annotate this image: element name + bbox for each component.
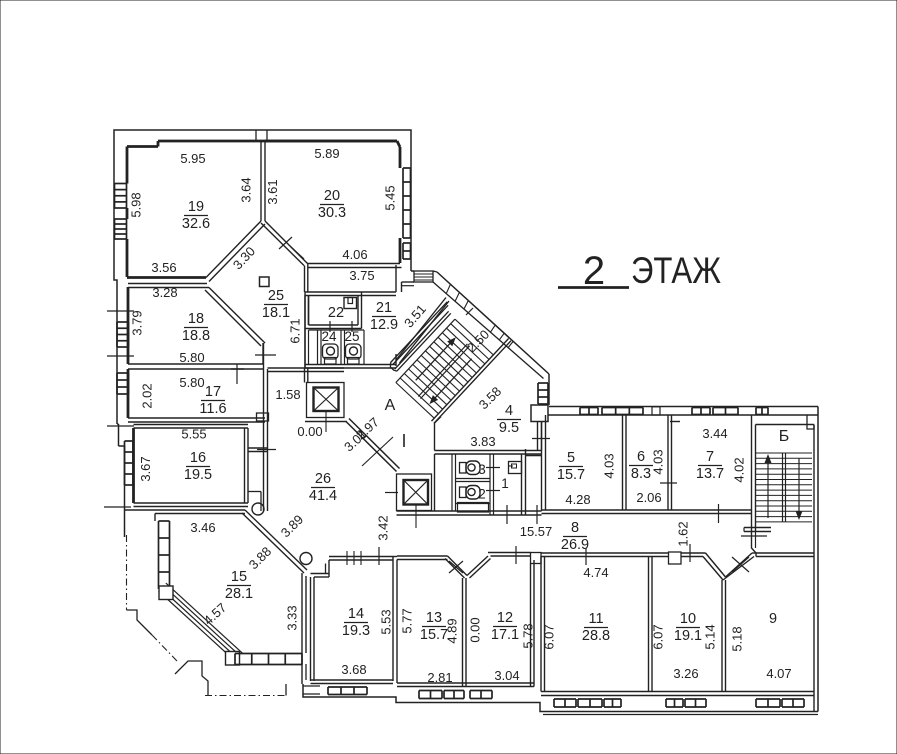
- svg-text:4: 4: [505, 403, 513, 419]
- svg-text:19.3: 19.3: [342, 623, 370, 639]
- svg-text:3.44: 3.44: [702, 426, 727, 441]
- svg-text:2.81: 2.81: [427, 670, 452, 685]
- svg-text:3.79: 3.79: [130, 310, 145, 335]
- svg-text:5.18: 5.18: [730, 626, 745, 651]
- svg-text:3.46: 3.46: [190, 520, 215, 535]
- svg-text:19: 19: [188, 199, 204, 215]
- svg-text:21: 21: [376, 300, 392, 316]
- svg-text:26: 26: [315, 471, 331, 487]
- svg-text:4.03: 4.03: [651, 449, 666, 474]
- svg-text:28.8: 28.8: [582, 628, 610, 644]
- svg-text:28.1: 28.1: [225, 586, 253, 602]
- svg-text:3.61: 3.61: [265, 179, 280, 204]
- svg-text:7: 7: [706, 449, 714, 465]
- svg-text:10: 10: [680, 611, 696, 627]
- svg-text:5.77: 5.77: [400, 608, 415, 633]
- svg-text:5: 5: [567, 450, 575, 466]
- svg-text:6: 6: [637, 449, 645, 465]
- svg-text:5.45: 5.45: [383, 185, 398, 210]
- svg-text:11: 11: [588, 611, 603, 627]
- svg-text:25: 25: [268, 288, 284, 304]
- svg-text:18: 18: [188, 311, 204, 327]
- svg-text:А: А: [385, 397, 396, 414]
- svg-text:5.80: 5.80: [179, 375, 204, 390]
- svg-text:41.4: 41.4: [309, 488, 337, 504]
- svg-text:3: 3: [478, 462, 486, 477]
- svg-text:3.83: 3.83: [470, 434, 495, 449]
- svg-text:18.1: 18.1: [262, 305, 290, 321]
- svg-text:3.33: 3.33: [285, 605, 300, 630]
- svg-text:3.68: 3.68: [341, 662, 366, 677]
- svg-text:5.98: 5.98: [129, 192, 144, 217]
- svg-text:4.06: 4.06: [342, 247, 367, 262]
- svg-text:3.56: 3.56: [151, 260, 176, 275]
- svg-text:5.78: 5.78: [521, 623, 536, 648]
- svg-text:14: 14: [348, 606, 364, 622]
- svg-text:Б: Б: [779, 428, 790, 445]
- svg-text:32.6: 32.6: [182, 216, 210, 232]
- svg-text:15.7: 15.7: [557, 467, 585, 483]
- svg-text:4.89: 4.89: [445, 618, 460, 643]
- svg-text:1: 1: [501, 476, 509, 491]
- svg-text:20: 20: [324, 188, 340, 204]
- svg-text:6.71: 6.71: [288, 318, 303, 343]
- svg-text:5.55: 5.55: [181, 427, 206, 442]
- svg-text:13.7: 13.7: [696, 466, 724, 482]
- svg-text:1.62: 1.62: [676, 521, 691, 546]
- svg-text:6.07: 6.07: [651, 624, 666, 649]
- svg-text:3.64: 3.64: [239, 177, 254, 202]
- svg-text:15: 15: [231, 569, 247, 585]
- svg-text:3.04: 3.04: [494, 668, 519, 683]
- svg-text:3.58: 3.58: [476, 384, 505, 413]
- svg-text:8: 8: [571, 520, 579, 536]
- svg-text:17.1: 17.1: [491, 627, 519, 643]
- svg-text:13: 13: [426, 610, 442, 626]
- svg-text:4.74: 4.74: [583, 565, 608, 580]
- svg-text:6.07: 6.07: [542, 624, 557, 649]
- svg-text:2.06: 2.06: [636, 490, 661, 505]
- svg-text:19.5: 19.5: [184, 467, 212, 483]
- svg-text:3.28: 3.28: [152, 285, 177, 300]
- svg-text:0.00: 0.00: [468, 617, 483, 642]
- svg-text:5.14: 5.14: [703, 624, 718, 649]
- svg-text:3.67: 3.67: [138, 456, 153, 481]
- svg-text:3.75: 3.75: [349, 268, 374, 283]
- svg-text:3.42: 3.42: [376, 515, 391, 540]
- svg-text:0.00: 0.00: [297, 424, 322, 439]
- svg-text:16: 16: [190, 450, 206, 466]
- svg-text:17: 17: [205, 384, 221, 400]
- svg-text:24: 24: [321, 329, 337, 344]
- svg-text:18.8: 18.8: [182, 328, 210, 344]
- svg-text:9: 9: [769, 611, 777, 627]
- svg-text:2: 2: [478, 487, 486, 502]
- svg-text:1.58: 1.58: [275, 387, 300, 402]
- svg-text:8.3: 8.3: [631, 466, 651, 482]
- svg-text:30.3: 30.3: [318, 205, 346, 221]
- svg-text:4.28: 4.28: [565, 492, 590, 507]
- svg-text:5.89: 5.89: [314, 146, 339, 161]
- svg-text:3.89: 3.89: [278, 512, 307, 541]
- svg-text:19.1: 19.1: [674, 628, 702, 644]
- svg-text:9.5: 9.5: [499, 420, 519, 436]
- svg-text:3.26: 3.26: [673, 666, 698, 681]
- svg-text:12: 12: [497, 610, 513, 626]
- svg-text:22: 22: [328, 305, 344, 321]
- svg-text:26.9: 26.9: [561, 537, 589, 553]
- svg-text:12.9: 12.9: [370, 317, 398, 333]
- svg-text:4.03: 4.03: [602, 453, 617, 478]
- svg-text:4.02: 4.02: [732, 457, 747, 482]
- svg-text:4.07: 4.07: [766, 666, 791, 681]
- svg-text:15.57: 15.57: [520, 524, 553, 539]
- svg-text:11.6: 11.6: [199, 401, 226, 417]
- svg-text:ЭТАЖ: ЭТАЖ: [631, 250, 721, 291]
- svg-text:5.95: 5.95: [180, 151, 205, 166]
- svg-text:5.53: 5.53: [379, 609, 394, 634]
- svg-text:2.02: 2.02: [140, 383, 155, 408]
- svg-text:5.80: 5.80: [179, 350, 204, 365]
- svg-text:3.88: 3.88: [246, 544, 275, 573]
